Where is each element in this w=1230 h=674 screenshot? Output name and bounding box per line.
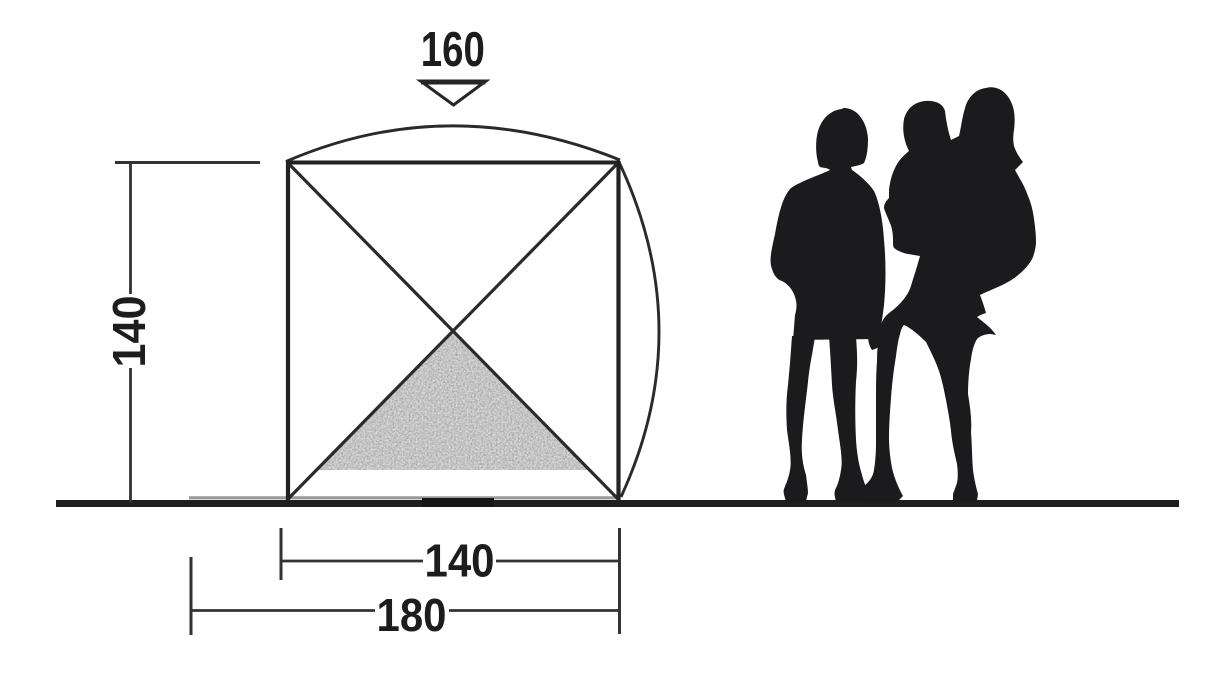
svg-text:180: 180 [377,589,447,641]
svg-text:140: 140 [103,296,155,368]
svg-text:140: 140 [425,535,495,587]
svg-text:160: 160 [421,23,485,77]
